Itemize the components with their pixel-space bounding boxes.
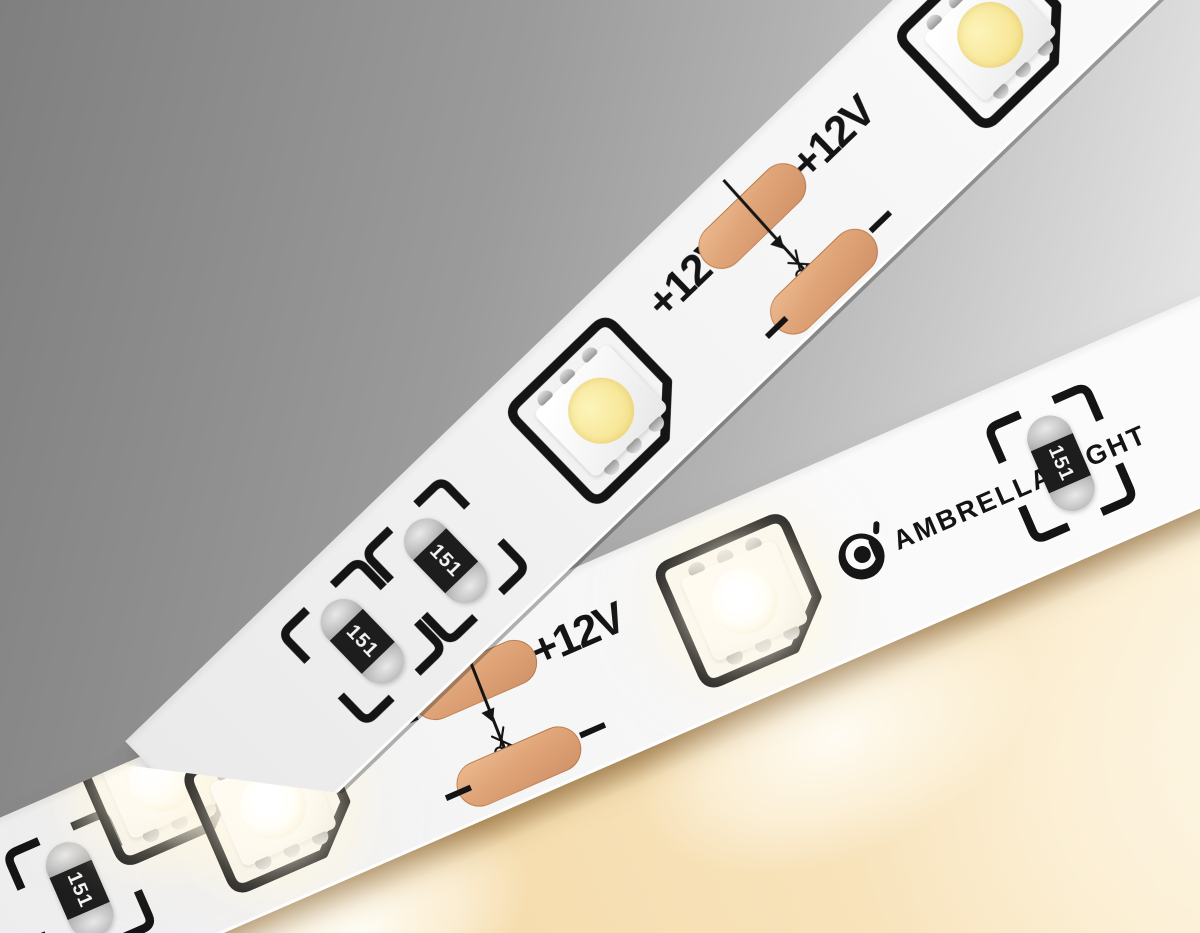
logo-tick: [873, 521, 880, 534]
led-strip-product-photo: 151: [0, 0, 1200, 933]
resistor-code: 151: [1044, 442, 1077, 483]
resistor-code: 151: [342, 621, 382, 661]
resistor-code: 151: [426, 540, 466, 580]
